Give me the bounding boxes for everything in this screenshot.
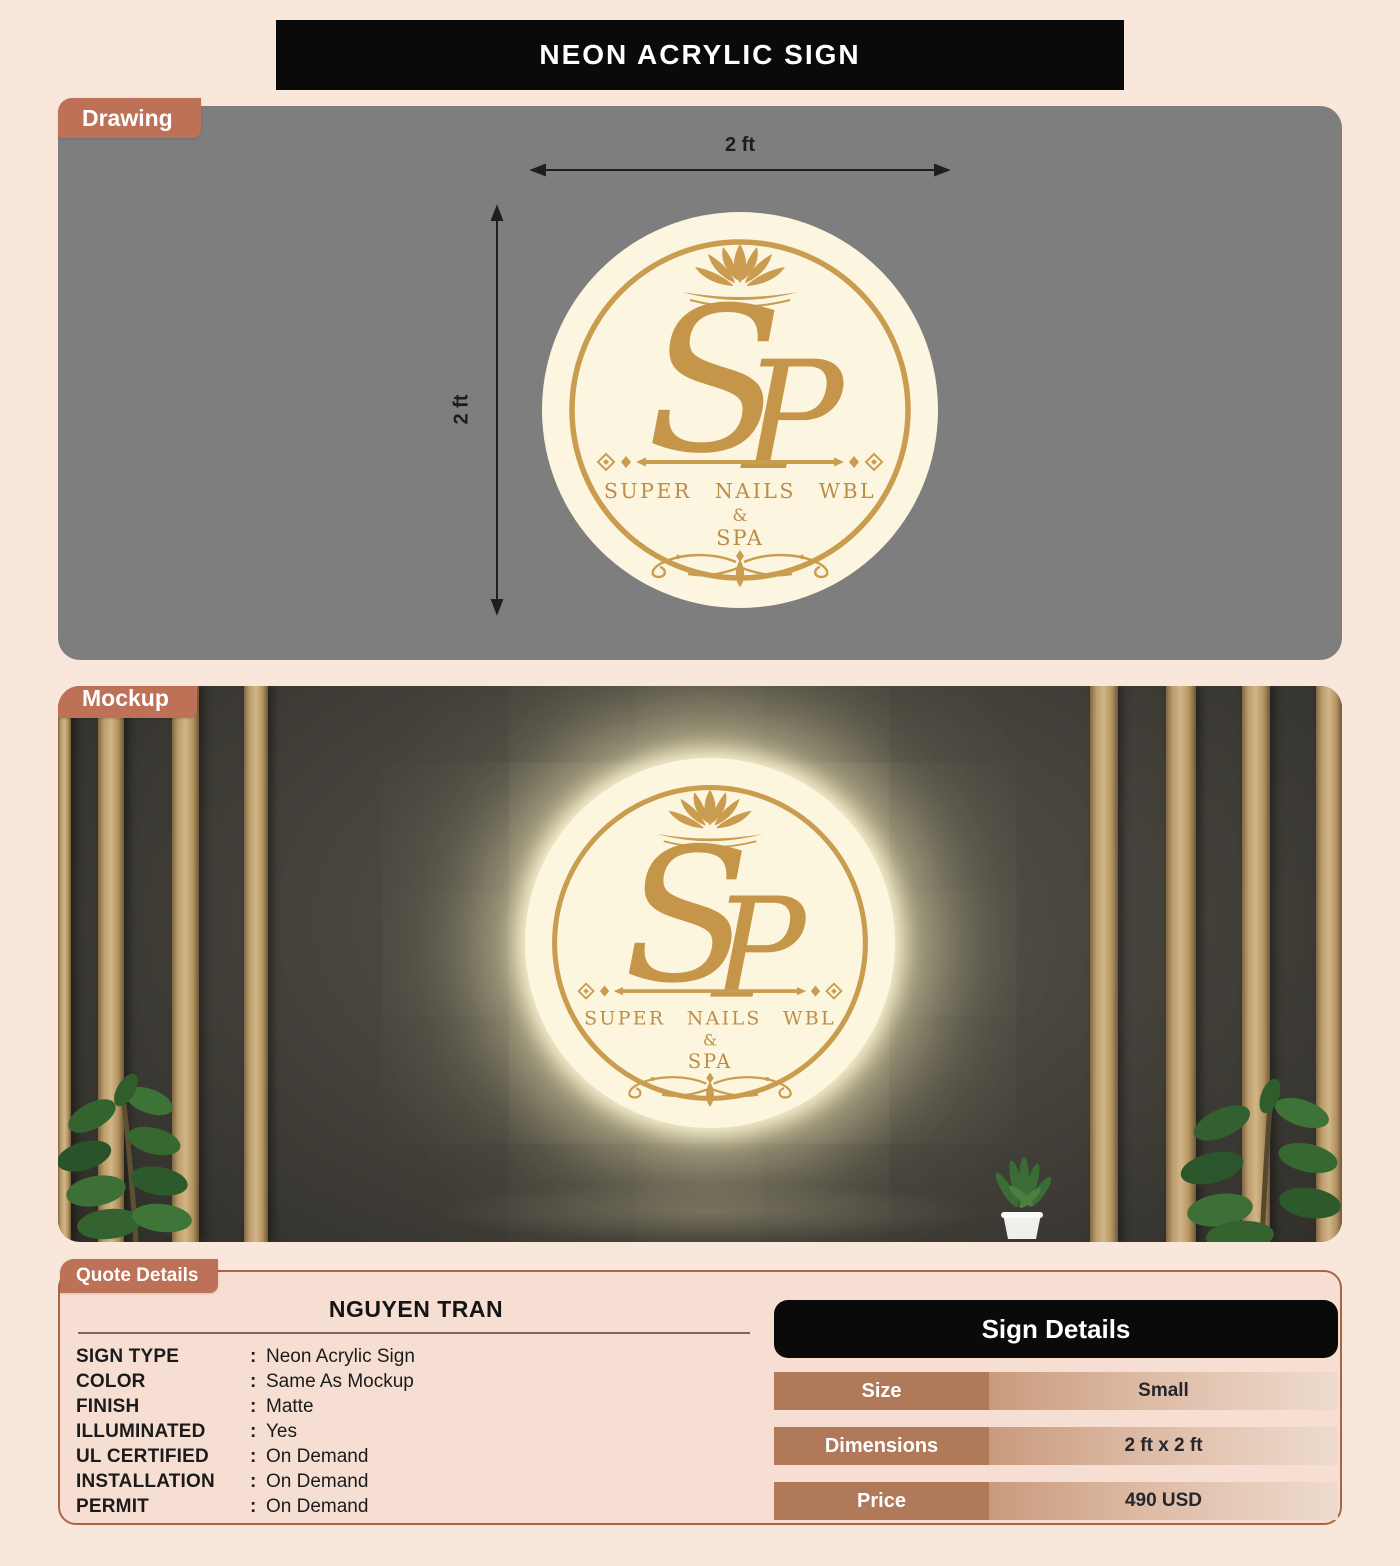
field-label: ILLUMINATED <box>76 1419 250 1444</box>
sign-details-title: Sign Details <box>982 1314 1131 1345</box>
field-value: On Demand <box>266 1469 368 1494</box>
field-value: Matte <box>266 1394 314 1419</box>
sign-details-row: Size Small <box>774 1372 1338 1410</box>
quote-details-label: Quote Details <box>76 1265 198 1287</box>
mockup-section-tab: Mockup <box>58 686 197 718</box>
dimension-arrow-top <box>492 207 502 220</box>
quote-fields-list: SIGN TYPE : Neon Acrylic Sign COLOR : Sa… <box>76 1344 766 1519</box>
row-label: Dimensions <box>774 1427 989 1465</box>
logo-ampersand: & <box>703 1031 717 1050</box>
monogram-p: P <box>740 330 847 504</box>
row-value: 490 USD <box>989 1482 1338 1520</box>
field-label: COLOR <box>76 1369 250 1394</box>
sign-logo-mockup: S P SUPER NAILS WBL & SPA <box>525 758 895 1128</box>
quote-field-row: FINISH : Matte <box>76 1394 766 1419</box>
quote-details-panel: Quote Details NGUYEN TRAN SIGN TYPE : Ne… <box>58 1270 1342 1525</box>
field-label: INSTALLATION <box>76 1469 250 1494</box>
field-colon: : <box>250 1469 266 1494</box>
dimension-arrow-bottom <box>492 600 502 613</box>
drawing-section-label: Drawing <box>82 105 173 132</box>
logo-line1: SUPER NAILS WBL <box>584 1007 836 1029</box>
field-colon: : <box>250 1444 266 1469</box>
row-label: Size <box>774 1372 989 1410</box>
field-colon: : <box>250 1419 266 1444</box>
field-label: FINISH <box>76 1394 250 1419</box>
field-label: UL CERTIFIED <box>76 1444 250 1469</box>
field-value: Neon Acrylic Sign <box>266 1344 415 1369</box>
mockup-panel: S P SUPER NAILS WBL & SPA <box>58 686 1342 1242</box>
field-value: Yes <box>266 1419 297 1444</box>
logo-line2: SPA <box>716 526 764 550</box>
logo-ampersand: & <box>732 506 747 526</box>
logo-line2: SPA <box>688 1050 732 1073</box>
quote-field-row: UL CERTIFIED : On Demand <box>76 1444 766 1469</box>
left-plant-icon <box>58 1046 214 1242</box>
height-dimension-label: 2 ft <box>451 370 474 450</box>
drawing-panel: Drawing 2 ft 2 ft <box>58 106 1342 660</box>
field-label: SIGN TYPE <box>76 1344 250 1369</box>
small-plant-icon <box>983 1144 1061 1242</box>
page-title: NEON ACRYLIC SIGN <box>539 39 860 71</box>
sign-details-row: Dimensions 2 ft x 2 ft <box>774 1427 1338 1465</box>
field-value: On Demand <box>266 1494 368 1519</box>
dimension-arrow-right <box>935 165 948 175</box>
row-label: Price <box>774 1482 989 1520</box>
quote-field-row: INSTALLATION : On Demand <box>76 1469 766 1494</box>
field-value: Same As Mockup <box>266 1369 414 1394</box>
mockup-section-label: Mockup <box>82 686 169 712</box>
dimension-arrow-left <box>532 165 545 175</box>
quote-details-tab: Quote Details <box>60 1259 218 1293</box>
row-value: Small <box>989 1372 1338 1410</box>
field-label: PERMIT <box>76 1494 250 1519</box>
monogram-p: P <box>709 868 808 1030</box>
sign-logo-drawing: S P SUPER NAILS WBL & SPA <box>540 210 940 610</box>
field-colon: : <box>250 1369 266 1394</box>
name-divider <box>78 1332 750 1334</box>
quote-field-row: SIGN TYPE : Neon Acrylic Sign <box>76 1344 766 1369</box>
quote-field-row: COLOR : Same As Mockup <box>76 1369 766 1394</box>
field-colon: : <box>250 1394 266 1419</box>
row-value: 2 ft x 2 ft <box>989 1427 1338 1465</box>
wood-slat <box>1090 686 1118 1242</box>
right-plant-icon <box>1170 1078 1342 1242</box>
quote-field-row: ILLUMINATED : Yes <box>76 1419 766 1444</box>
floor-light <box>430 1182 990 1242</box>
field-colon: : <box>250 1344 266 1369</box>
page-title-banner: NEON ACRYLIC SIGN <box>276 20 1124 90</box>
field-value: On Demand <box>266 1444 368 1469</box>
logo-line1: SUPER NAILS WBL <box>604 479 876 503</box>
width-dimension-label: 2 ft <box>540 134 940 157</box>
quote-field-row: PERMIT : On Demand <box>76 1494 766 1519</box>
field-colon: : <box>250 1494 266 1519</box>
drawing-section-tab: Drawing <box>58 98 201 138</box>
sign-details-header: Sign Details <box>774 1300 1338 1358</box>
wood-slat <box>244 686 268 1242</box>
customer-name: NGUYEN TRAN <box>72 1296 760 1323</box>
sign-details-row: Price 490 USD <box>774 1482 1338 1520</box>
